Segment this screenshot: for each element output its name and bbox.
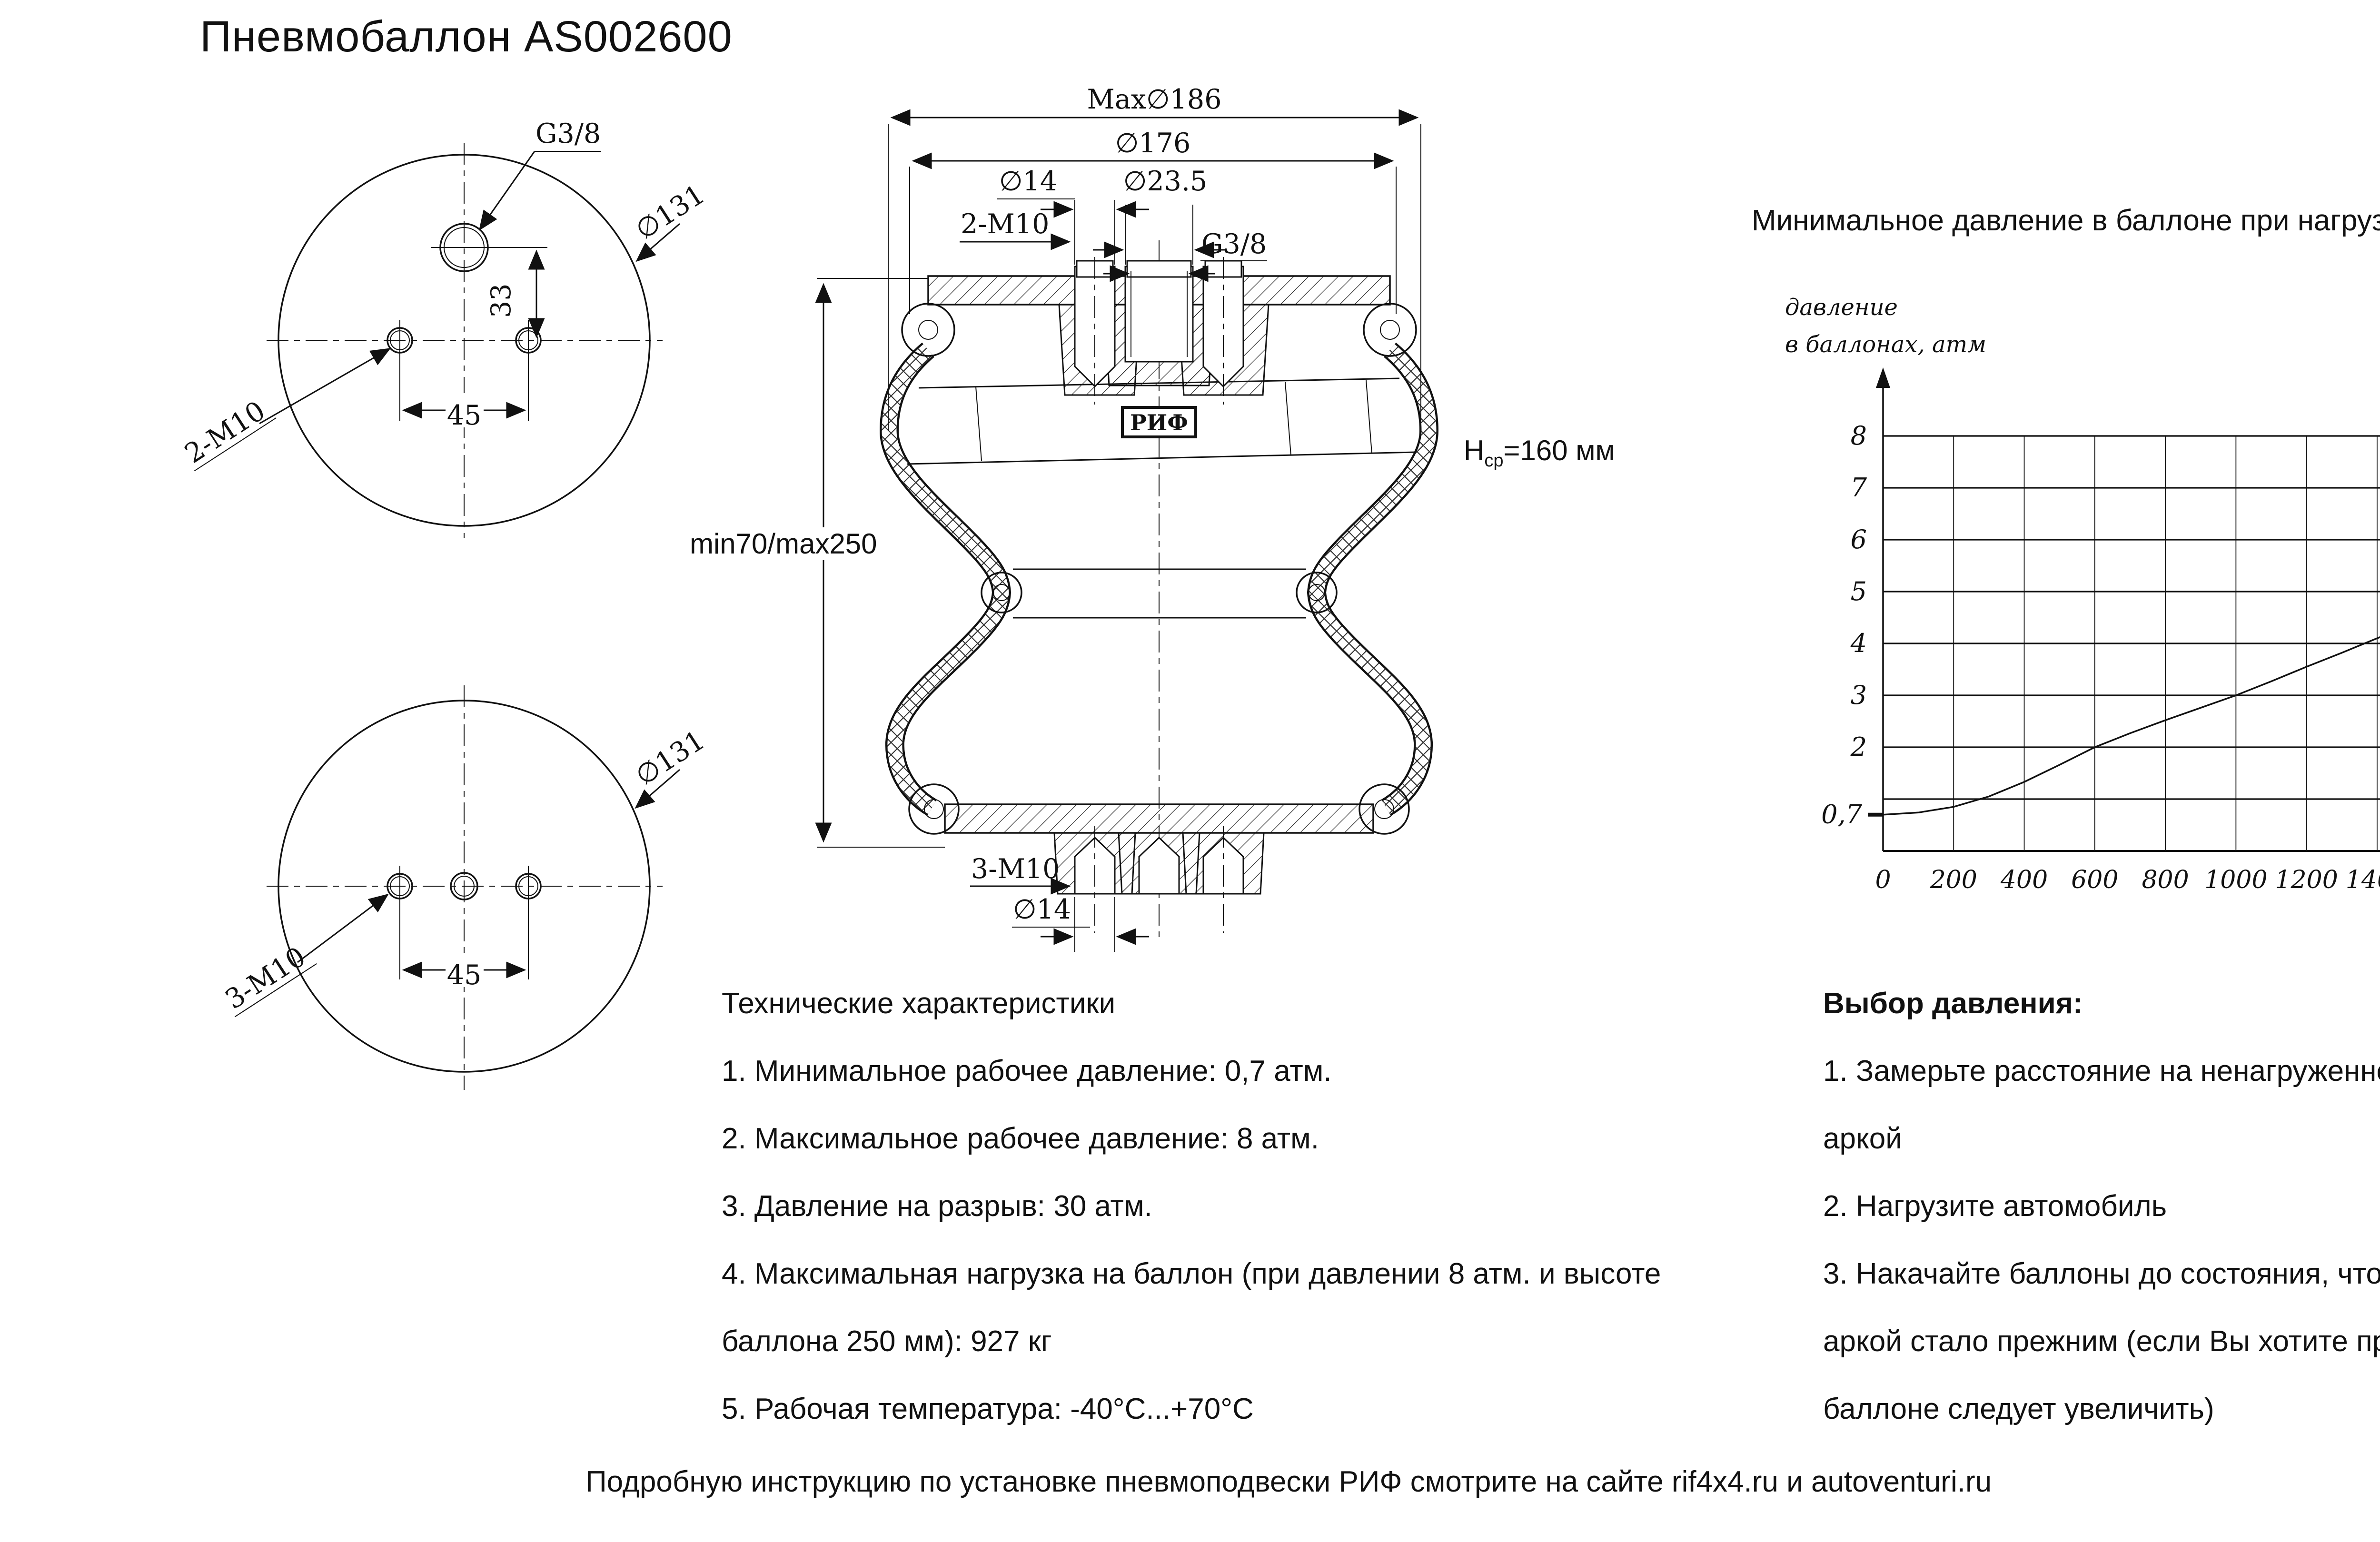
y-tick-label: 5 <box>1851 576 1867 606</box>
x-tick-label: 600 <box>2071 866 2118 894</box>
d14-bottom-label: ∅14 <box>1013 894 1071 925</box>
d131-label: ∅131 <box>630 724 711 792</box>
spec-item: 5. Рабочая температура: -40°C...+70°C <box>722 1375 1702 1443</box>
y-tick-label: 8 <box>1851 421 1867 451</box>
y-tick-label: 7 <box>1851 473 1867 503</box>
pressure-selection-title: Выбор давления: <box>1823 970 2380 1038</box>
x-tick-label: 800 <box>2142 866 2189 894</box>
spec-item: 3. Давление на разрыв: 30 атм. <box>722 1173 1702 1240</box>
dim-33: 33 <box>486 283 517 318</box>
pressure-selection-item: 1. Замерьте расстояние на ненагруженном … <box>1823 1038 2380 1173</box>
m10-top-label: 2-M10 <box>961 208 1049 240</box>
bottom-plate <box>945 804 1373 833</box>
pressure-selection-block: Выбор давления: 1. Замерьте расстояние н… <box>1823 970 2380 1443</box>
m10-bottom-label: 3-M10 <box>971 853 1060 885</box>
g38-section-label: G3/8 <box>1201 228 1267 260</box>
d176-label: ∅176 <box>1115 128 1190 159</box>
y-tick-label: 6 <box>1851 524 1867 554</box>
height-range-label: min70/max250 <box>684 527 883 560</box>
x-tick-label: 1000 <box>2204 866 2267 894</box>
chart-ylabel-line1: давление <box>1785 294 1898 321</box>
chart-plot: 23456780,7020040060080010001200140016001… <box>1821 367 2380 894</box>
top-view: 33 45 G3/8 ∅131 2-M10 <box>177 118 710 538</box>
spec-item: 2. Максимальное рабочее давление: 8 атм. <box>722 1105 1702 1173</box>
footer-text: Подробную инструкцию по установке пневмо… <box>585 1465 1992 1499</box>
dim-45: 45 <box>447 400 482 431</box>
d131-label: ∅131 <box>630 178 711 246</box>
d235-label: ∅23.5 <box>1123 166 1208 197</box>
x-tick-label: 1200 <box>2275 866 2338 894</box>
m10-label: 3-M10 <box>220 941 311 1016</box>
x-tick-label: 200 <box>1930 866 1977 894</box>
y-tick-label: 3 <box>1851 680 1867 710</box>
m10-label: 2-M10 <box>179 395 271 470</box>
spec-item: 1. Минимальное рабочее давление: 0,7 атм… <box>722 1038 1702 1105</box>
section-view: РИФ <box>817 84 1429 952</box>
max-diameter-label: Max∅186 <box>1087 84 1222 115</box>
y-axis-arrow <box>1876 367 1890 388</box>
pressure-chart: давление в баллонах, атм нагрузка на зад… <box>1714 286 2380 999</box>
chart-ylabel-line2: в баллонах, атм <box>1785 331 1986 358</box>
g38-label: G3/8 <box>535 118 601 149</box>
specs-block: Технические характеристики 1. Минимально… <box>722 970 1702 1443</box>
pressure-selection-item: 2. Нагрузите автомобиль <box>1823 1173 2380 1240</box>
average-height-label: Нср=160 мм <box>1464 434 1615 471</box>
dim-45: 45 <box>447 959 482 991</box>
page-title: Пневмобаллон AS002600 <box>200 12 733 62</box>
y-tick-label: 2 <box>1850 732 1867 762</box>
pressure-selection-item: 3. Накачайте баллоны до состояния, чтобы… <box>1823 1240 2380 1443</box>
bottom-view: 45 ∅131 3-M10 <box>218 685 710 1090</box>
y-tick-label: 4 <box>1850 628 1867 658</box>
chart-title: Минимальное давление в баллоне при нагру… <box>1752 204 2380 237</box>
brand-label: РИФ <box>1130 410 1188 435</box>
specs-title: Технические характеристики <box>722 970 1702 1038</box>
d14-top-label: ∅14 <box>999 166 1057 197</box>
spec-item: 4. Максимальная нагрузка на баллон (при … <box>722 1240 1702 1375</box>
y-special-label: 0,7 <box>1821 800 1863 830</box>
pressure-curve <box>1883 529 2380 815</box>
x-tick-label: 1400 <box>2346 866 2380 894</box>
x-tick-label: 0 <box>1875 866 1891 894</box>
x-tick-label: 400 <box>2000 866 2048 894</box>
